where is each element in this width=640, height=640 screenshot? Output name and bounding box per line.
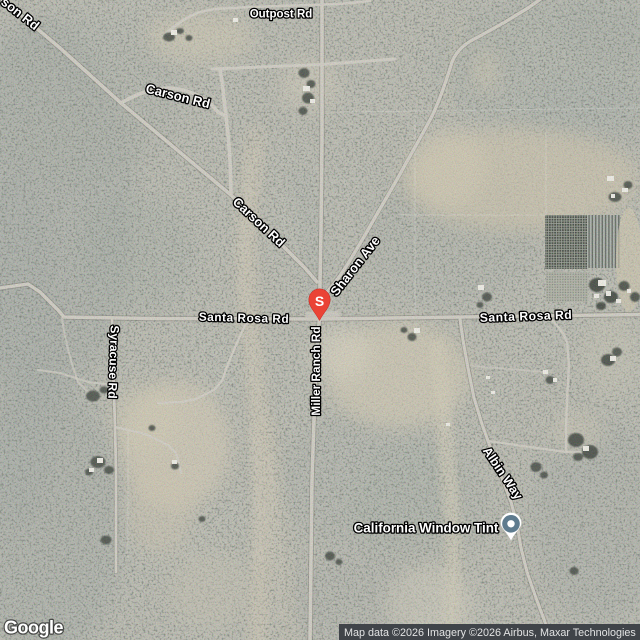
svg-text:Syracuse Rd: Syracuse Rd [105, 325, 122, 399]
svg-text:Google: Google [4, 618, 63, 638]
svg-text:Map data ©2026 Imagery ©2026 A: Map data ©2026 Imagery ©2026 Airbus, Max… [344, 627, 636, 639]
svg-text:California Window Tint: California Window Tint [354, 521, 499, 536]
svg-text:Santa Rosa Rd: Santa Rosa Rd [199, 310, 290, 326]
svg-text:S: S [315, 293, 324, 309]
svg-text:Outpost Rd: Outpost Rd [250, 8, 313, 20]
svg-text:Miller Ranch Rd: Miller Ranch Rd [309, 326, 323, 415]
